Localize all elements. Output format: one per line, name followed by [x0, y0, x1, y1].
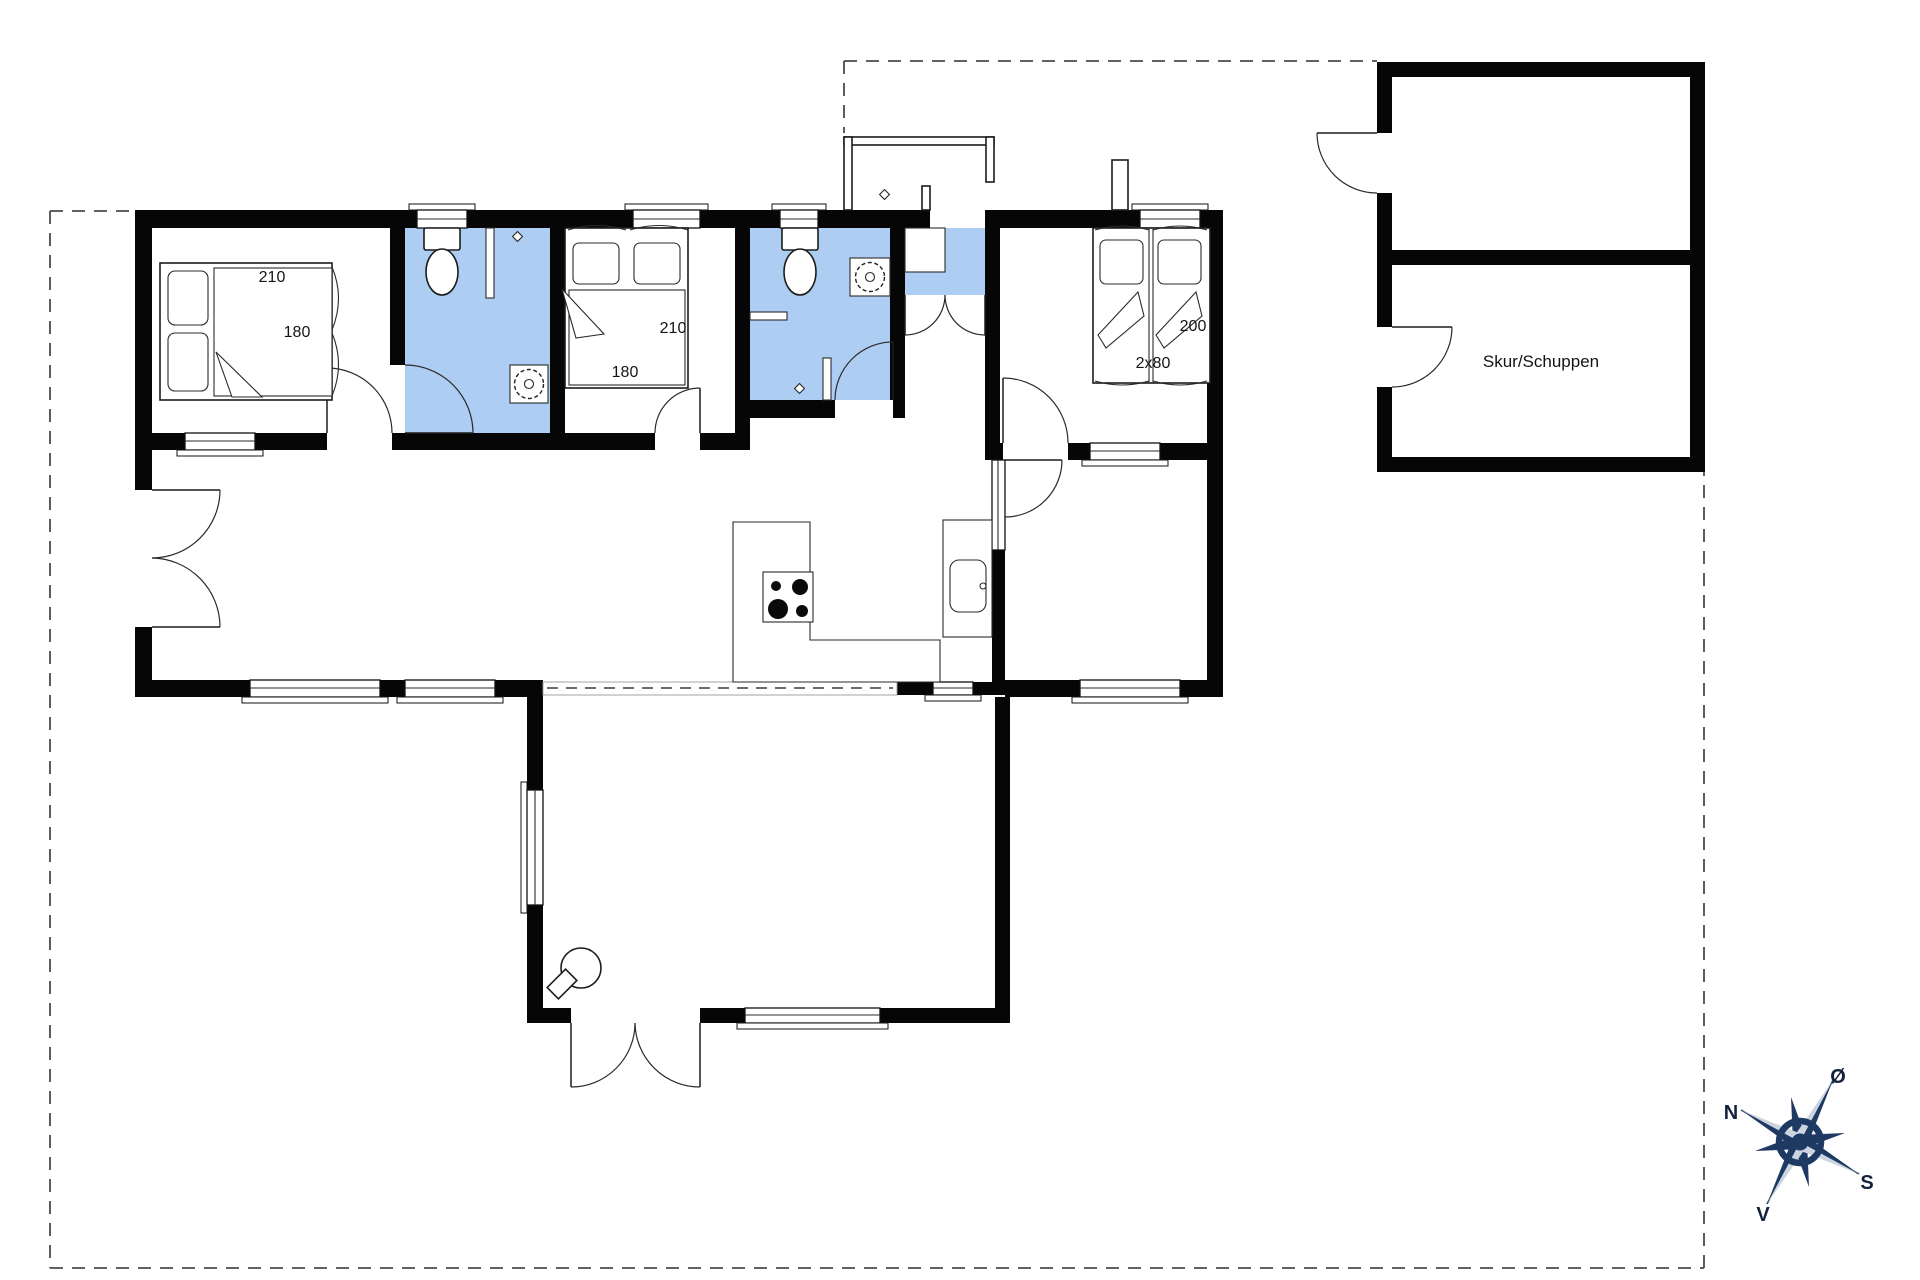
- windbreak-wall-stub: [1112, 160, 1128, 210]
- living-room-double-doors: [152, 490, 220, 627]
- window: [1082, 443, 1168, 466]
- stove-icon: [763, 572, 813, 622]
- open-span-beam: [543, 682, 897, 695]
- compass-west-label: V: [1756, 1204, 1770, 1226]
- shed-label: Skur/Schuppen: [1483, 352, 1599, 371]
- washing-machine-icon: [850, 258, 890, 296]
- glass-door-window: [992, 460, 1005, 550]
- window: [409, 204, 475, 228]
- shower-partition: [750, 312, 787, 320]
- entry-nook-double-doors: [905, 295, 985, 335]
- bed1-width-label: 180: [284, 324, 311, 341]
- toilet-icon: [424, 228, 460, 295]
- shower-partition: [486, 228, 494, 298]
- bed3-width-label: 2x80: [1136, 355, 1171, 372]
- shed-room1-door-swing: [1317, 133, 1377, 193]
- bed3-length-label: 200: [1180, 318, 1207, 335]
- sink-icon: [950, 560, 986, 612]
- bedroom-2: 210 180: [562, 226, 688, 389]
- floor-plan-page: Skur/Schuppen: [0, 0, 1920, 1280]
- window: [521, 782, 543, 913]
- bathroom2-door-opening: [835, 400, 893, 418]
- window: [242, 680, 388, 703]
- bedroom3-door-swing: [1003, 378, 1068, 443]
- door-marker-icon: [880, 190, 890, 200]
- bed2-length-label: 210: [660, 320, 687, 337]
- shed: Skur/Schuppen: [1317, 62, 1705, 472]
- compass-east-label: Ø: [1830, 1066, 1846, 1088]
- window: [177, 433, 263, 456]
- compass-south-label: S: [1860, 1172, 1873, 1194]
- floor-plan-canvas: Skur/Schuppen: [0, 0, 1920, 1280]
- bedroom2-door-opening: [655, 433, 700, 450]
- shed-room1-door-opening: [1377, 133, 1392, 193]
- bedroom2-door-swing: [655, 388, 700, 433]
- right-wing-door-swing: [1005, 460, 1062, 517]
- shed-room2-door-swing: [1392, 327, 1452, 387]
- bedroom-3: 200 2x80: [1093, 226, 1210, 385]
- window: [737, 1008, 888, 1029]
- window: [925, 682, 981, 701]
- window: [1072, 680, 1188, 703]
- bedroom-1: 210 180: [160, 263, 339, 400]
- double-bed: [160, 263, 339, 400]
- shower-partition: [823, 358, 831, 400]
- bedroom1-door-swing: [327, 368, 392, 433]
- front-door-opening: [930, 210, 985, 228]
- bedroom3-door-opening: [1003, 443, 1068, 460]
- bed1-length-label: 210: [259, 269, 286, 286]
- window: [397, 680, 503, 703]
- bed2-width-label: 180: [612, 364, 639, 381]
- wood-stove-icon: [547, 948, 601, 999]
- entry-closet: [905, 228, 945, 272]
- compass-north-label: N: [1724, 1102, 1738, 1124]
- compass-rose: N Ø S V: [1724, 1066, 1874, 1226]
- entrance-porch: [844, 137, 994, 210]
- window: [772, 204, 826, 228]
- window: [625, 204, 708, 228]
- kitchen: [733, 520, 992, 682]
- sink-counter: [943, 520, 992, 637]
- bedroom1-door-opening: [327, 433, 392, 450]
- front-door-leaf: [922, 186, 930, 210]
- shed-room2-door-opening: [1377, 327, 1392, 387]
- terrace-double-doors: [571, 1023, 700, 1087]
- washing-machine-icon: [510, 365, 548, 403]
- window: [1132, 204, 1208, 228]
- left-double-door-opening: [135, 490, 152, 627]
- garden-room: [547, 948, 601, 999]
- terrace-double-door-opening: [571, 1008, 700, 1023]
- toilet-icon: [782, 228, 818, 295]
